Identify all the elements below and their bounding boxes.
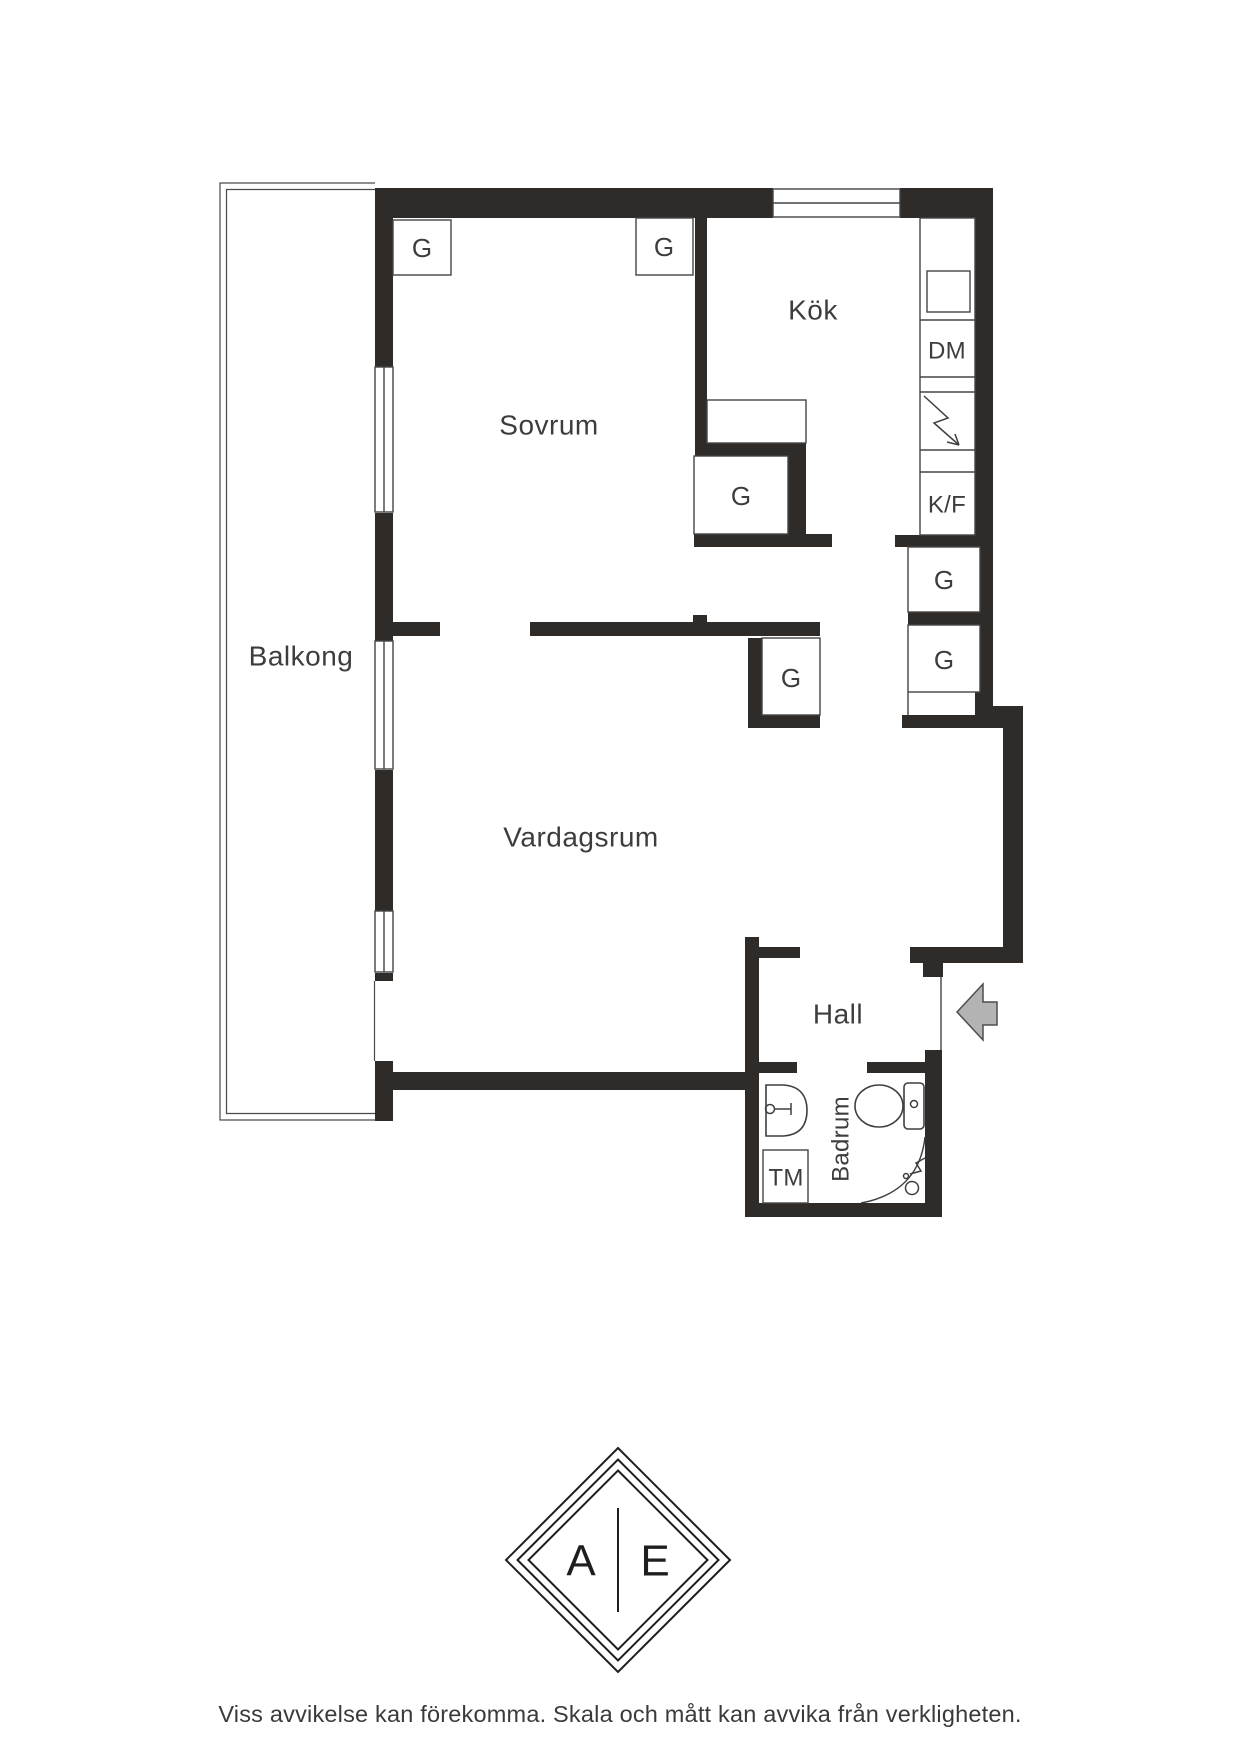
- room-label-bedroom: Sovrum: [499, 410, 598, 441]
- floor-plan-page: G G G G G G DM: [0, 0, 1240, 1754]
- room-label-kitchen: Kök: [788, 295, 838, 326]
- agency-logo: A E: [506, 1448, 730, 1672]
- entry: [941, 977, 997, 1050]
- closet-bedroom-right: G: [636, 218, 693, 275]
- closet-right-upper: G: [908, 547, 980, 612]
- closet-label: G: [781, 663, 801, 693]
- floor-plan: G G G G G G DM: [0, 0, 1240, 1754]
- window-living-upper: [375, 641, 393, 769]
- room-label-hall: Hall: [813, 999, 863, 1030]
- toilet-icon: [855, 1083, 924, 1129]
- logo-letter-a: A: [566, 1537, 596, 1586]
- dishwasher-label: DM: [928, 338, 966, 365]
- entry-arrow-icon: [957, 984, 997, 1040]
- room-label-bathroom: Badrum: [828, 1096, 855, 1182]
- fridge-freezer-label: K/F: [928, 492, 966, 519]
- closet-label: G: [654, 232, 674, 262]
- sink-basin-icon: [766, 1085, 808, 1136]
- logo-letter-e: E: [640, 1537, 669, 1586]
- closet-middle: G: [694, 456, 788, 534]
- washing-machine-label: TM: [768, 1165, 803, 1192]
- closet-label: G: [412, 233, 432, 263]
- window-bedroom: [375, 367, 393, 512]
- room-label-balcony: Balkong: [249, 641, 354, 672]
- closets: G G G G G G: [393, 218, 980, 715]
- shower-icon: [861, 1137, 925, 1203]
- sink-icon: [927, 271, 970, 312]
- closet-right-lower: G: [908, 625, 980, 692]
- window-living-lower: [375, 911, 393, 972]
- closet-lower-middle: G: [762, 638, 820, 715]
- kitchen-counter: [707, 400, 806, 443]
- washing-machine-box: TM: [763, 1150, 808, 1203]
- window-top-kitchen: [773, 189, 900, 217]
- disclaimer-text: Viss avvikelse kan förekomma. Skala och …: [218, 1701, 1021, 1727]
- closet-label: G: [934, 645, 954, 675]
- closet-label: G: [934, 565, 954, 595]
- closet-label: G: [731, 481, 751, 511]
- room-label-living-room: Vardagsrum: [503, 822, 658, 853]
- closet-bedroom-left: G: [393, 220, 451, 275]
- appliance-column: DM K/F: [920, 218, 975, 535]
